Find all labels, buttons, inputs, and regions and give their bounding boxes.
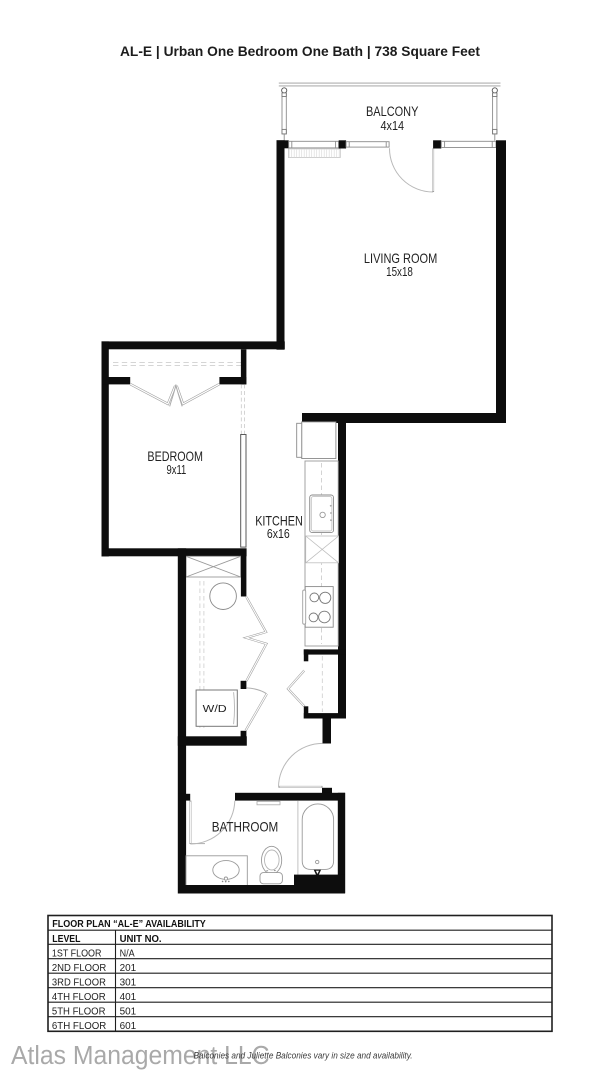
svg-text:501: 501 <box>120 1006 137 1017</box>
svg-text:6TH FLOOR: 6TH FLOOR <box>52 1021 106 1032</box>
svg-text:301: 301 <box>120 977 137 988</box>
svg-text:FLOOR PLAN “AL-E” AVAILABILITY: FLOOR PLAN “AL-E” AVAILABILITY <box>52 919 206 930</box>
svg-text:LEVEL: LEVEL <box>52 934 80 945</box>
svg-text:4x14: 4x14 <box>381 118 405 133</box>
svg-text:BALCONY: BALCONY <box>366 104 418 119</box>
svg-text:AL-E | Urban One Bedroom One B: AL-E | Urban One Bedroom One Bath | 738 … <box>120 44 481 59</box>
svg-text:W/D: W/D <box>203 703 227 715</box>
svg-text:15x18: 15x18 <box>386 264 413 279</box>
svg-text:N/A: N/A <box>120 948 135 959</box>
svg-text:9x11: 9x11 <box>167 462 187 477</box>
svg-text:2ND FLOOR: 2ND FLOOR <box>52 963 106 974</box>
svg-text:201: 201 <box>120 963 137 974</box>
svg-text:1ST FLOOR: 1ST FLOOR <box>52 948 102 959</box>
svg-text:Balconies and Juliette Balconi: Balconies and Juliette Balconies vary in… <box>194 1051 413 1062</box>
svg-text:UNIT NO.: UNIT NO. <box>120 934 162 945</box>
svg-text:5TH FLOOR: 5TH FLOOR <box>52 1006 106 1017</box>
svg-text:6x16: 6x16 <box>267 526 290 541</box>
svg-text:401: 401 <box>120 992 137 1003</box>
svg-text:BATHROOM: BATHROOM <box>212 818 279 834</box>
svg-text:601: 601 <box>120 1021 137 1032</box>
svg-text:4TH FLOOR: 4TH FLOOR <box>52 992 106 1003</box>
svg-text:3RD FLOOR: 3RD FLOOR <box>52 977 106 988</box>
